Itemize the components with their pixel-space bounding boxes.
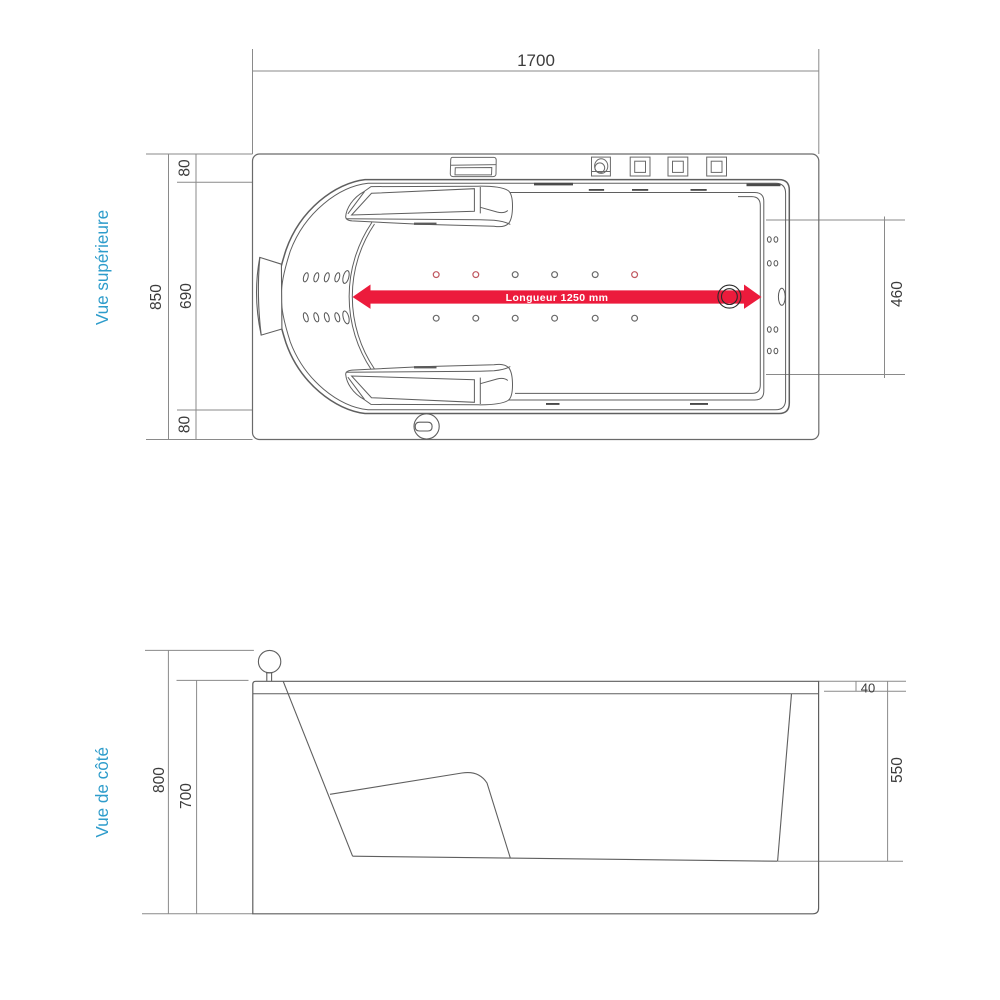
svg-text:690: 690 xyxy=(178,283,195,309)
svg-text:Vue supérieure: Vue supérieure xyxy=(93,210,112,325)
svg-text:Vue de côté: Vue de côté xyxy=(93,747,112,838)
svg-text:80: 80 xyxy=(177,416,194,434)
svg-text:700: 700 xyxy=(178,783,195,809)
svg-text:550: 550 xyxy=(889,757,906,783)
svg-text:850: 850 xyxy=(148,284,165,310)
svg-text:460: 460 xyxy=(889,281,906,307)
svg-text:800: 800 xyxy=(151,767,168,793)
svg-text:80: 80 xyxy=(177,159,194,177)
svg-text:Longueur 1250 mm: Longueur 1250 mm xyxy=(506,292,609,304)
svg-text:40: 40 xyxy=(861,681,875,696)
svg-text:1700: 1700 xyxy=(517,51,555,70)
